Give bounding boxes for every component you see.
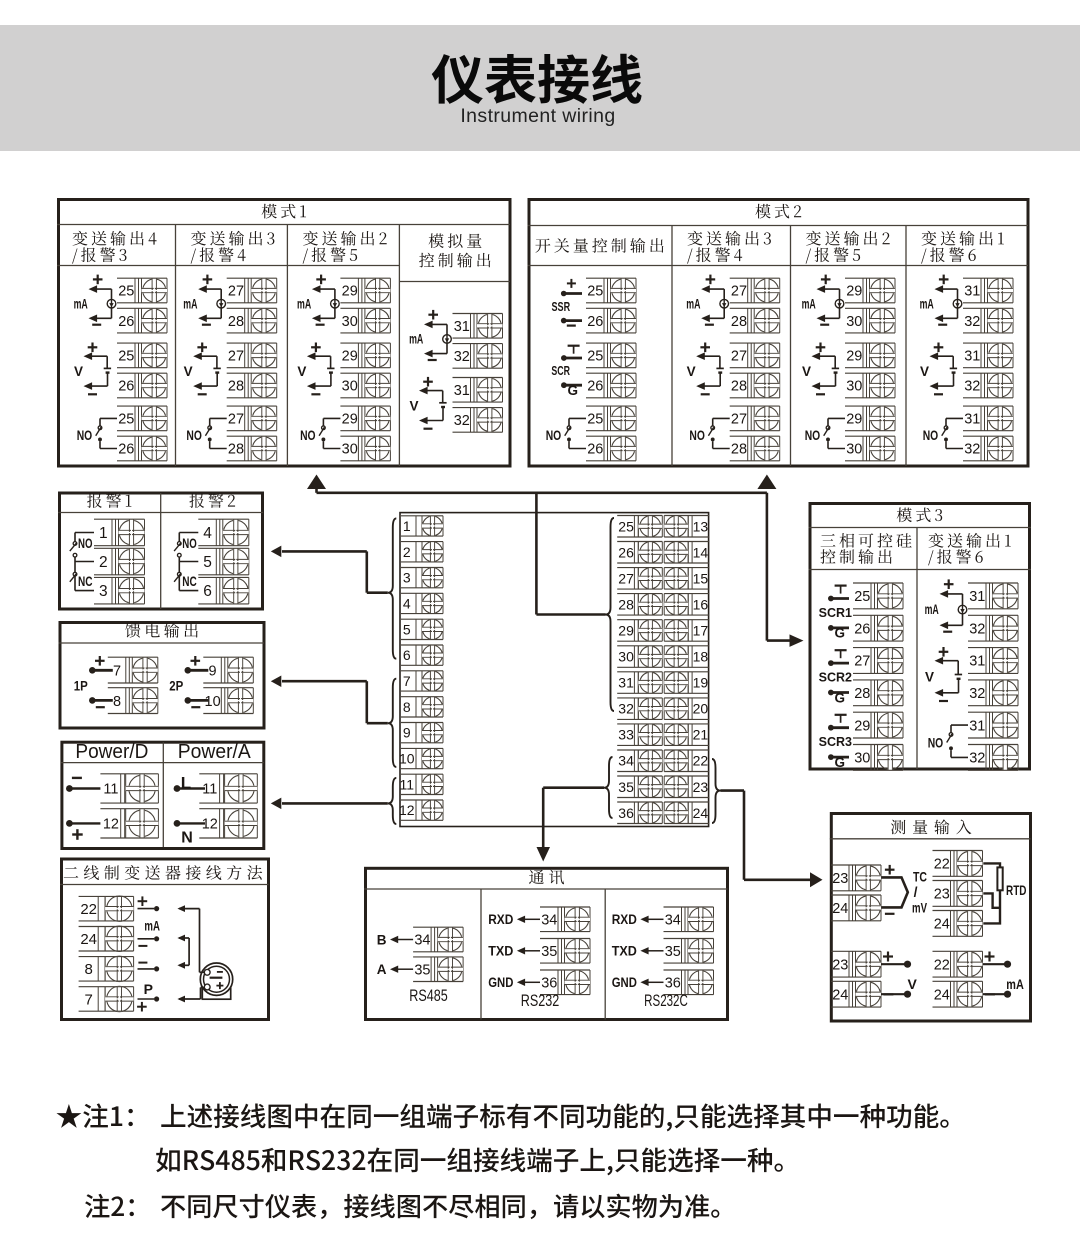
svg-text:23: 23 <box>832 957 848 973</box>
svg-text:29: 29 <box>846 349 862 365</box>
svg-text:27: 27 <box>228 284 244 300</box>
svg-text:36: 36 <box>541 976 557 992</box>
svg-text:12: 12 <box>103 817 119 833</box>
svg-text:N: N <box>181 830 193 847</box>
svg-text:24: 24 <box>832 987 848 1003</box>
svg-text:mA: mA <box>297 296 311 311</box>
svg-text:9: 9 <box>209 663 217 679</box>
svg-text:29: 29 <box>342 412 358 428</box>
svg-text:mA: mA <box>74 296 88 311</box>
svg-text:32: 32 <box>454 413 470 429</box>
svg-text:26: 26 <box>587 379 603 395</box>
svg-text:SCR: SCR <box>551 364 570 378</box>
svg-text:29: 29 <box>618 623 634 639</box>
svg-text:34: 34 <box>541 913 557 929</box>
svg-text:V: V <box>74 364 83 379</box>
svg-text:1: 1 <box>403 518 411 534</box>
svg-text:12: 12 <box>399 802 415 818</box>
svg-text:mA: mA <box>925 602 939 617</box>
svg-text:32: 32 <box>964 379 980 395</box>
svg-text:1P: 1P <box>74 679 88 694</box>
svg-text:30: 30 <box>854 751 870 767</box>
svg-text:V: V <box>925 670 934 685</box>
svg-text:mA: mA <box>802 296 816 311</box>
svg-text:32: 32 <box>969 621 985 637</box>
svg-text:8: 8 <box>113 694 121 710</box>
svg-text:31: 31 <box>969 589 985 605</box>
svg-text:8: 8 <box>403 699 411 715</box>
svg-text:27: 27 <box>731 349 747 365</box>
svg-text:18: 18 <box>693 649 709 665</box>
svg-text:28: 28 <box>731 314 747 330</box>
svg-text:NO: NO <box>300 428 316 443</box>
svg-text:35: 35 <box>618 779 634 795</box>
svg-text:36: 36 <box>618 805 634 821</box>
svg-text:13: 13 <box>693 518 709 534</box>
svg-text:34: 34 <box>414 933 430 949</box>
svg-text:11: 11 <box>400 776 415 792</box>
svg-text:22: 22 <box>934 957 950 973</box>
svg-text:21: 21 <box>693 727 709 743</box>
svg-text:35: 35 <box>541 944 557 960</box>
svg-text:27: 27 <box>618 570 634 586</box>
svg-text:32: 32 <box>969 751 985 767</box>
svg-text:mA: mA <box>144 917 160 933</box>
svg-text:23: 23 <box>693 779 709 795</box>
svg-text:31: 31 <box>964 349 980 365</box>
svg-text:1: 1 <box>99 525 108 542</box>
svg-text:25: 25 <box>118 349 134 365</box>
svg-text:RTD: RTD <box>1006 882 1027 898</box>
svg-text:RXD: RXD <box>612 912 637 927</box>
svg-text:26: 26 <box>118 314 134 330</box>
svg-text:B: B <box>377 932 387 947</box>
svg-text:14: 14 <box>693 544 709 560</box>
svg-text:mA: mA <box>409 332 423 347</box>
svg-text:32: 32 <box>964 314 980 330</box>
svg-text:G: G <box>835 626 846 641</box>
svg-text:28: 28 <box>228 442 244 458</box>
svg-text:30: 30 <box>342 442 358 458</box>
svg-text:24: 24 <box>934 917 950 933</box>
svg-text:35: 35 <box>414 962 430 978</box>
svg-text:24: 24 <box>832 901 848 917</box>
svg-text:26: 26 <box>618 544 634 560</box>
svg-text:5: 5 <box>203 554 212 571</box>
svg-text:mA: mA <box>686 296 700 311</box>
svg-text:8: 8 <box>85 961 93 978</box>
svg-text:3: 3 <box>403 570 411 586</box>
svg-text:29: 29 <box>342 284 358 300</box>
svg-text:26: 26 <box>587 314 603 330</box>
svg-text:NO: NO <box>689 428 705 443</box>
svg-text:28: 28 <box>854 686 870 702</box>
svg-text:28: 28 <box>618 596 634 612</box>
svg-text:V: V <box>184 364 193 379</box>
svg-text:31: 31 <box>969 654 985 670</box>
svg-text:V: V <box>802 364 811 379</box>
svg-text:35: 35 <box>665 944 681 960</box>
svg-text:P: P <box>144 981 153 997</box>
svg-text:mA: mA <box>1006 976 1024 992</box>
svg-text:6: 6 <box>403 647 411 663</box>
svg-text:9: 9 <box>403 725 411 741</box>
svg-text:25: 25 <box>118 284 134 300</box>
svg-text:V: V <box>297 364 306 379</box>
svg-text:NO: NO <box>77 428 93 443</box>
svg-text:24: 24 <box>693 805 709 821</box>
svg-text:4: 4 <box>203 525 212 542</box>
svg-text:2P: 2P <box>169 679 183 694</box>
svg-text:25: 25 <box>587 412 603 428</box>
svg-text:RS232: RS232 <box>521 992 560 1010</box>
svg-text:29: 29 <box>846 412 862 428</box>
svg-text:15: 15 <box>693 570 709 586</box>
svg-text:31: 31 <box>964 412 980 428</box>
svg-text:L: L <box>181 774 191 793</box>
svg-text:25: 25 <box>587 349 603 365</box>
svg-text:2: 2 <box>403 544 411 560</box>
svg-text:34: 34 <box>618 753 634 769</box>
svg-text:31: 31 <box>618 675 634 691</box>
svg-text:32: 32 <box>454 349 470 365</box>
svg-text:mA: mA <box>920 296 934 311</box>
svg-text:19: 19 <box>693 675 709 691</box>
svg-text:Power/D: Power/D <box>75 740 148 763</box>
svg-text:11: 11 <box>103 782 118 798</box>
svg-text:5: 5 <box>403 621 411 637</box>
svg-text:25: 25 <box>854 589 870 605</box>
svg-text:24: 24 <box>80 931 97 948</box>
svg-text:mV: mV <box>912 900 927 916</box>
svg-text:24: 24 <box>934 987 950 1003</box>
svg-text:G: G <box>568 383 579 398</box>
svg-text:17: 17 <box>693 623 709 639</box>
svg-text:22: 22 <box>693 753 709 769</box>
svg-text:TC: TC <box>913 869 927 885</box>
svg-text:23: 23 <box>832 871 848 887</box>
svg-text:NO: NO <box>186 428 202 443</box>
svg-text:RS485: RS485 <box>409 987 448 1005</box>
svg-text:30: 30 <box>846 379 862 395</box>
svg-text:SCR1: SCR1 <box>819 606 852 620</box>
svg-text:30: 30 <box>846 314 862 330</box>
svg-text:SCR2: SCR2 <box>819 671 852 685</box>
svg-text:4: 4 <box>403 596 411 612</box>
svg-text:NO: NO <box>805 428 821 443</box>
svg-text:29: 29 <box>342 349 358 365</box>
svg-text:31: 31 <box>454 383 470 399</box>
svg-text:NC: NC <box>182 574 197 589</box>
svg-text:32: 32 <box>964 442 980 458</box>
svg-text:Instrument wiring: Instrument wiring <box>460 105 615 127</box>
svg-text:7: 7 <box>113 663 121 679</box>
svg-text:32: 32 <box>969 686 985 702</box>
svg-text:32: 32 <box>618 701 634 717</box>
svg-text:29: 29 <box>854 718 870 734</box>
svg-text:V: V <box>908 976 918 992</box>
svg-text:31: 31 <box>964 284 980 300</box>
svg-text:27: 27 <box>228 412 244 428</box>
svg-text:30: 30 <box>342 379 358 395</box>
svg-text:10: 10 <box>399 751 415 767</box>
svg-text:V: V <box>687 364 696 379</box>
svg-text:28: 28 <box>731 442 747 458</box>
svg-text:34: 34 <box>665 913 681 929</box>
svg-text:28: 28 <box>731 379 747 395</box>
svg-text:TXD: TXD <box>488 944 513 959</box>
svg-text:SSR: SSR <box>552 300 571 314</box>
svg-text:NO: NO <box>928 736 944 751</box>
svg-text:36: 36 <box>665 976 681 992</box>
svg-text:25: 25 <box>587 284 603 300</box>
svg-text:V: V <box>920 364 929 379</box>
svg-text:22: 22 <box>80 901 97 918</box>
svg-text:7: 7 <box>403 673 411 689</box>
svg-text:NO: NO <box>182 536 197 551</box>
svg-text:26: 26 <box>587 442 603 458</box>
svg-text:/: / <box>914 884 918 900</box>
svg-text:16: 16 <box>693 596 709 612</box>
svg-text:27: 27 <box>731 284 747 300</box>
svg-text:30: 30 <box>618 649 634 665</box>
svg-text:27: 27 <box>731 412 747 428</box>
svg-text:7: 7 <box>85 991 93 1008</box>
svg-text:A: A <box>377 962 387 977</box>
svg-text:Power/A: Power/A <box>178 740 251 763</box>
svg-text:NO: NO <box>78 536 93 551</box>
svg-text:25: 25 <box>618 518 634 534</box>
svg-text:26: 26 <box>118 379 134 395</box>
svg-text:6: 6 <box>203 583 212 600</box>
svg-text:RS232C: RS232C <box>644 992 688 1010</box>
svg-text:G: G <box>835 755 846 770</box>
svg-text:26: 26 <box>118 442 134 458</box>
svg-text:NO: NO <box>923 428 939 443</box>
svg-text:22: 22 <box>934 857 950 873</box>
svg-text:31: 31 <box>969 718 985 734</box>
svg-text:33: 33 <box>618 727 634 743</box>
svg-text:28: 28 <box>228 379 244 395</box>
svg-text:NO: NO <box>546 428 562 443</box>
svg-text:V: V <box>409 398 418 413</box>
svg-text:GND: GND <box>612 975 637 990</box>
svg-text:RXD: RXD <box>488 912 513 927</box>
svg-text:25: 25 <box>118 412 134 428</box>
svg-text:GND: GND <box>488 975 513 990</box>
svg-text:SCR3: SCR3 <box>819 735 852 749</box>
svg-text:31: 31 <box>454 319 470 335</box>
svg-text:G: G <box>835 690 846 705</box>
svg-text:mA: mA <box>183 296 197 311</box>
svg-text:TXD: TXD <box>612 944 637 959</box>
svg-text:30: 30 <box>846 442 862 458</box>
svg-text:23: 23 <box>934 887 950 903</box>
svg-text:28: 28 <box>228 314 244 330</box>
svg-text:29: 29 <box>846 284 862 300</box>
svg-text:30: 30 <box>342 314 358 330</box>
svg-text:3: 3 <box>99 583 108 600</box>
svg-text:2: 2 <box>99 554 108 571</box>
svg-text:27: 27 <box>854 654 870 670</box>
svg-text:27: 27 <box>228 349 244 365</box>
svg-text:NC: NC <box>78 574 93 589</box>
svg-text:20: 20 <box>693 701 709 717</box>
svg-text:26: 26 <box>854 621 870 637</box>
